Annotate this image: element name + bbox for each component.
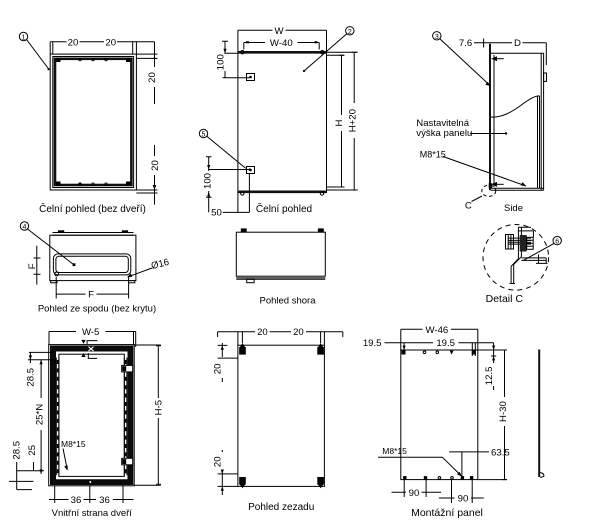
svg-text:20: 20 <box>105 37 116 48</box>
svg-text:28.5: 28.5 <box>11 441 22 460</box>
svg-text:W: W <box>274 26 284 37</box>
svg-text:4: 4 <box>23 224 27 231</box>
svg-text:19.5: 19.5 <box>436 338 455 349</box>
svg-text:28.5: 28.5 <box>26 368 37 387</box>
svg-text:W-40: W-40 <box>270 38 293 49</box>
svg-text:3: 3 <box>435 34 439 41</box>
svg-text:25*N: 25*N <box>35 404 46 425</box>
svg-text:C: C <box>465 201 472 212</box>
svg-text:Vnitřní strana dveří: Vnitřní strana dveří <box>52 508 133 519</box>
svg-text:F: F <box>88 290 94 301</box>
svg-text:19.5: 19.5 <box>363 338 382 349</box>
svg-text:36: 36 <box>99 495 110 506</box>
svg-text:20: 20 <box>257 327 268 338</box>
svg-text:F: F <box>27 263 38 269</box>
svg-text:Montážní panel: Montážní panel <box>411 507 483 519</box>
svg-text:20: 20 <box>213 364 224 375</box>
svg-text:W-5: W-5 <box>82 327 99 338</box>
svg-text:90: 90 <box>458 494 469 505</box>
svg-text:H-5: H-5 <box>153 400 164 415</box>
svg-text:H: H <box>334 119 345 126</box>
svg-text:25: 25 <box>27 445 38 456</box>
svg-text:20: 20 <box>147 72 158 83</box>
svg-text:2: 2 <box>348 29 352 36</box>
svg-text:50: 50 <box>211 208 222 219</box>
svg-text:M8*15: M8*15 <box>382 446 407 456</box>
svg-text:D: D <box>514 38 521 49</box>
svg-text:Čelní pohled (bez dveří): Čelní pohled (bez dveří) <box>39 202 146 215</box>
svg-text:1: 1 <box>22 35 26 42</box>
svg-text:6: 6 <box>555 239 559 246</box>
svg-text:20: 20 <box>213 456 224 467</box>
svg-text:H+20: H+20 <box>347 109 358 132</box>
svg-text:12.5: 12.5 <box>484 367 495 386</box>
svg-text:100: 100 <box>216 54 227 70</box>
svg-text:20: 20 <box>68 37 79 48</box>
svg-text:výška panelu: výška panelu <box>416 128 472 139</box>
svg-text:20: 20 <box>293 327 304 338</box>
svg-text:36: 36 <box>71 495 82 506</box>
svg-text:H-30: H-30 <box>498 401 509 422</box>
svg-text:7.6: 7.6 <box>459 38 472 49</box>
svg-text:W-46: W-46 <box>426 325 449 336</box>
svg-text:20: 20 <box>150 160 161 171</box>
svg-text:Side: Side <box>504 203 523 214</box>
svg-text:Čelní pohled: Čelní pohled <box>256 202 312 215</box>
svg-text:Pohled shora: Pohled shora <box>260 295 317 306</box>
svg-text:Pohled zezadu: Pohled zezadu <box>248 502 314 513</box>
svg-text:Detail C: Detail C <box>486 293 524 305</box>
svg-text:100: 100 <box>202 173 213 189</box>
svg-text:5: 5 <box>202 132 206 139</box>
svg-text:90: 90 <box>409 488 420 499</box>
svg-text:Pohled ze spodu (bez krytu): Pohled ze spodu (bez krytu) <box>38 304 156 315</box>
svg-text:63.5: 63.5 <box>491 447 510 458</box>
svg-text:M8*15: M8*15 <box>420 150 446 160</box>
svg-text:M8*15: M8*15 <box>61 439 86 449</box>
